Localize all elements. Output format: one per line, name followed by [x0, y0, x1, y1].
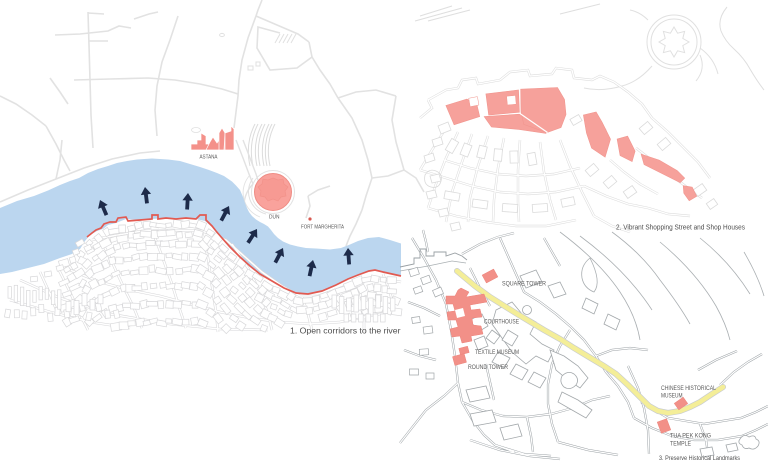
svg-text:TEMPLE: TEMPLE	[670, 441, 691, 448]
svg-text:DUN: DUN	[269, 215, 280, 221]
svg-text:CHINESE HISTORICAL: CHINESE HISTORICAL	[661, 385, 716, 392]
svg-text:3. Preserve Historical Landmar: 3. Preserve Historical Landmarks	[659, 455, 740, 462]
svg-text:COURTHOUSE: COURTHOUSE	[484, 319, 519, 326]
svg-text:SQUARE TOWER: SQUARE TOWER	[502, 281, 546, 288]
svg-text:2. Vibrant Shopping Street and: 2. Vibrant Shopping Street and Shop Hous…	[616, 223, 745, 232]
svg-text:MUSEUM: MUSEUM	[661, 393, 683, 400]
svg-text:TEXTILE MUSEUM: TEXTILE MUSEUM	[475, 349, 519, 356]
svg-text:1. Open corridors to the river: 1. Open corridors to the river	[290, 327, 401, 336]
svg-text:TUA PEK KONG: TUA PEK KONG	[670, 433, 711, 440]
svg-text:FORT MARGHERITA: FORT MARGHERITA	[301, 225, 345, 231]
svg-text:ASTANA: ASTANA	[200, 155, 219, 161]
svg-text:ROUND TOWER: ROUND TOWER	[468, 364, 508, 371]
